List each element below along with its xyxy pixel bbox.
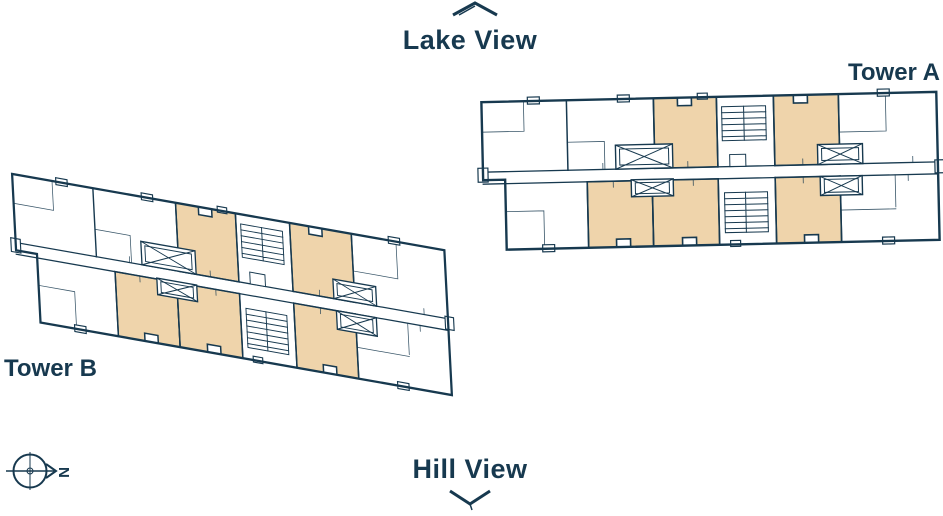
hill-view-label: Hill View <box>370 454 570 485</box>
tower-a-floorplan <box>473 85 943 257</box>
chevron-up-icon <box>449 0 503 18</box>
tower-b-floorplan <box>0 158 480 410</box>
compass-icon: N <box>4 447 88 499</box>
compass-north-label: N <box>55 467 72 478</box>
chevron-down-icon <box>446 488 496 512</box>
site-plan-canvas: Lake View Tower A Tower B N <box>0 0 943 516</box>
tower-a-label: Tower A <box>848 59 940 87</box>
lake-view-label: Lake View <box>370 25 570 56</box>
